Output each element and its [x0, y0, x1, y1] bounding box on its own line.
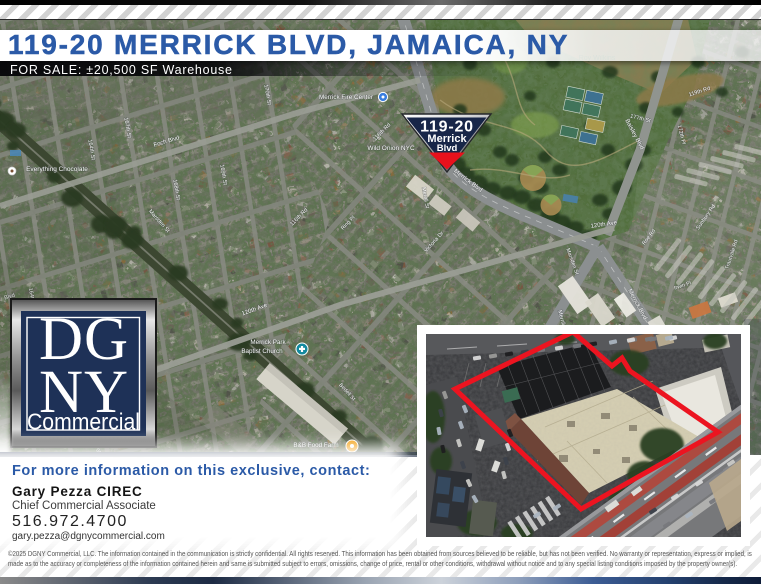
svg-text:Wild Onion NYC: Wild Onion NYC	[367, 145, 415, 152]
svg-text:Baptist Church: Baptist Church	[241, 348, 283, 355]
svg-text:Everything Chocolate: Everything Chocolate	[26, 166, 88, 173]
svg-text:Blvd: Blvd	[437, 143, 458, 154]
svg-text:Merrick Park: Merrick Park	[250, 339, 286, 346]
svg-text:Merrick Fire Center: Merrick Fire Center	[319, 94, 373, 101]
svg-text:Commercial: Commercial	[27, 409, 140, 435]
svg-text:B&B Food Farm: B&B Food Farm	[293, 442, 338, 449]
